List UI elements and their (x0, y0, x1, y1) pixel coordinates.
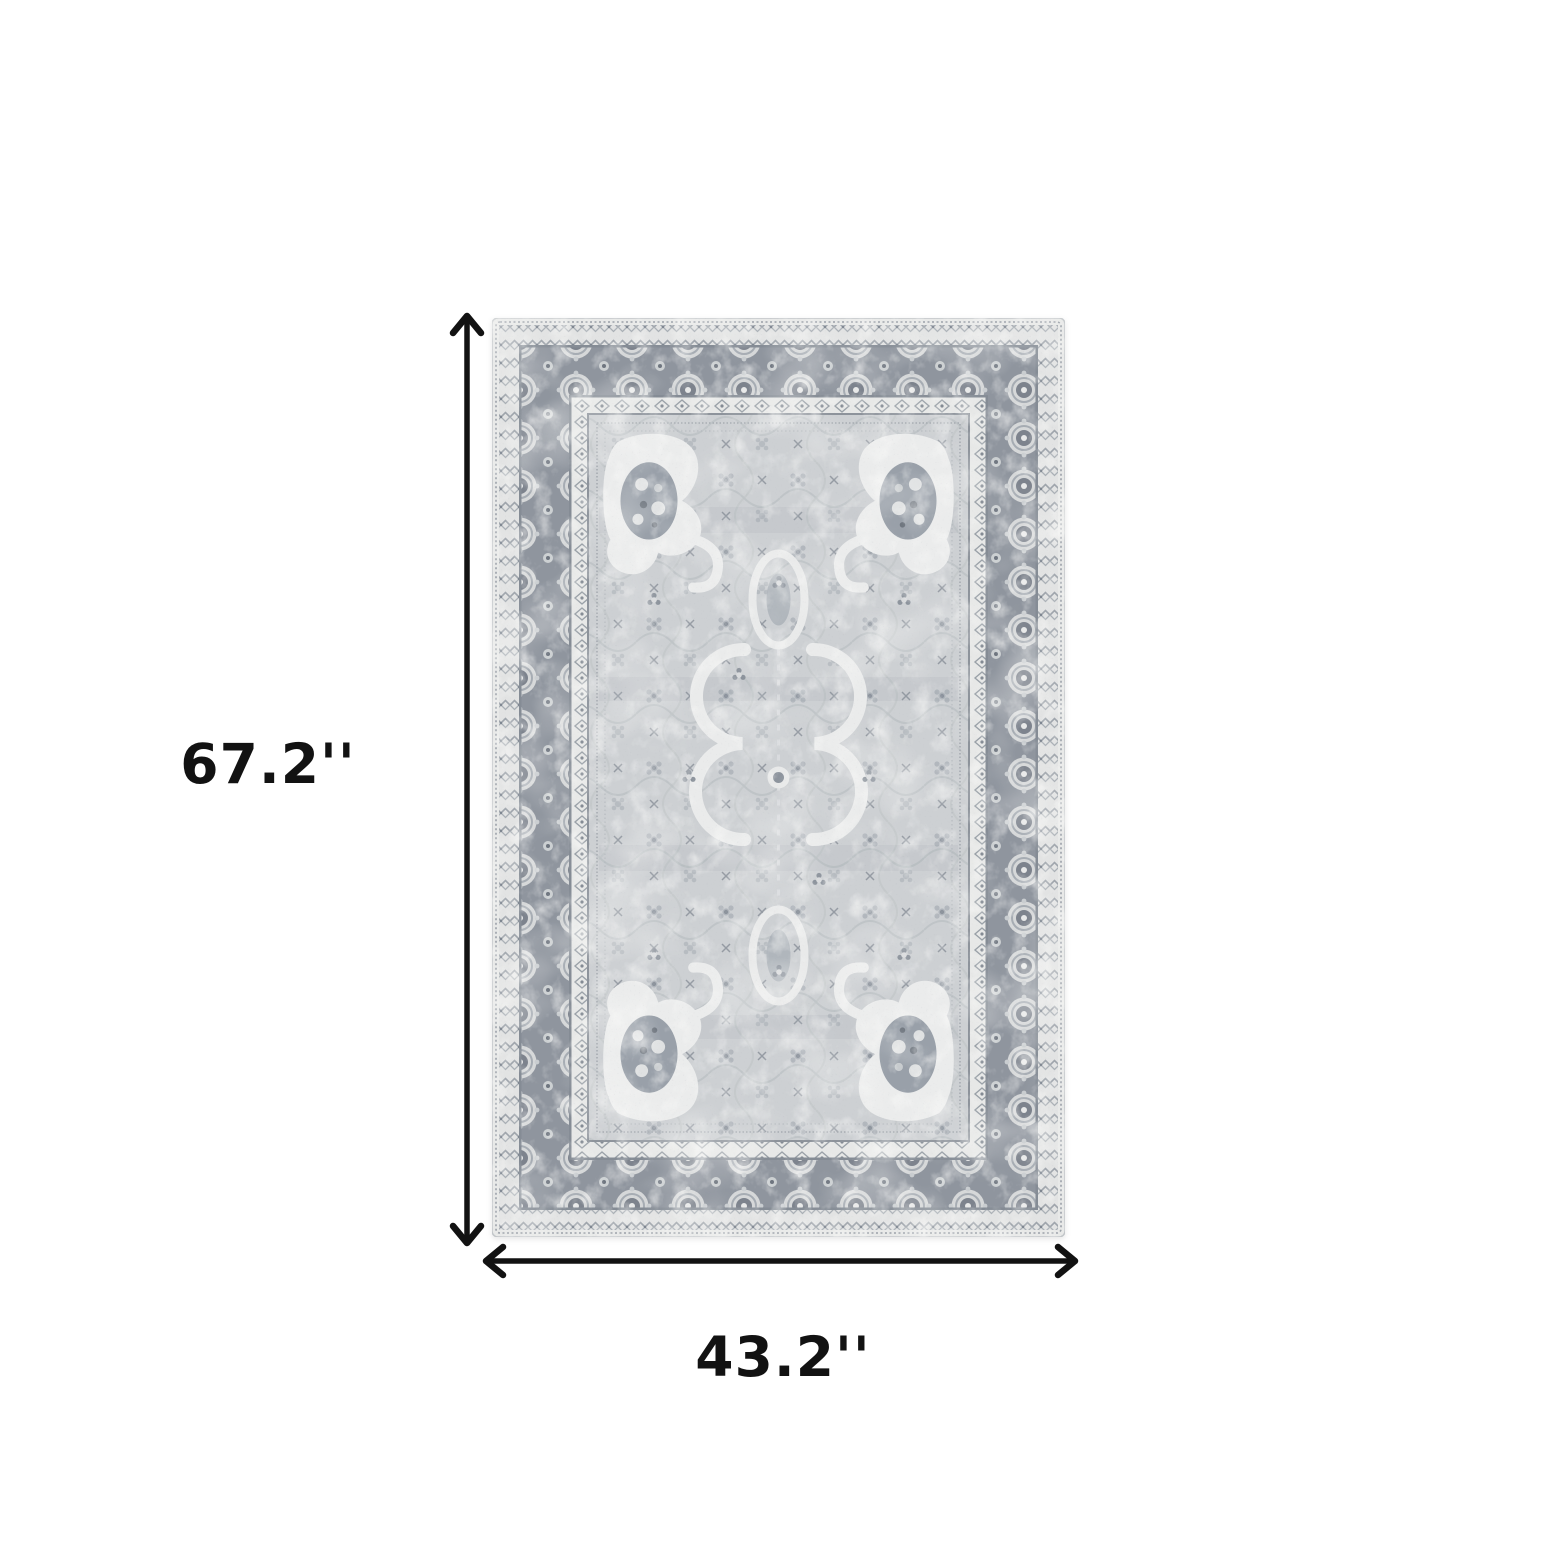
rug-illustration (492, 318, 1065, 1237)
rug-image (492, 318, 1065, 1237)
height-dimension-label: 67.2'' (128, 737, 408, 792)
width-dimension-label: 43.2'' (638, 1330, 928, 1385)
product-image-canvas: 67.2'' 43.2'' (0, 0, 1560, 1560)
width-dimension-arrow (486, 1247, 1075, 1275)
height-dimension-arrow (453, 316, 481, 1243)
